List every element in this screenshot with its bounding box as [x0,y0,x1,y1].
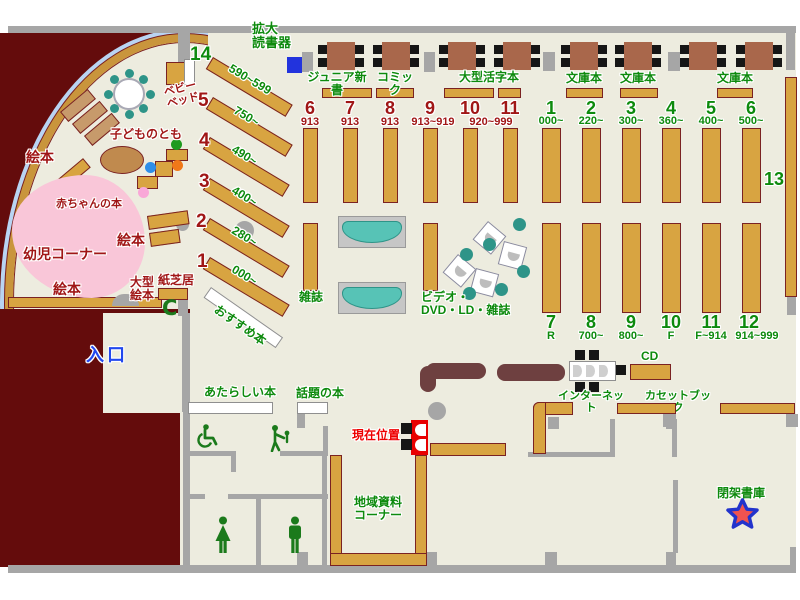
marker-seat [415,439,426,451]
label-shelf [566,88,603,98]
regional-shelf [330,553,427,566]
stack-shelf [303,128,318,203]
av-label: ビデオ・ DVD・LD・雑誌 [421,291,510,317]
internet-seat [586,365,595,377]
shelf-number: 2 [196,212,207,233]
outside-area-bottomleft2 [103,413,180,567]
wall-shelf [430,443,506,456]
chair [616,365,626,375]
wall-stub [790,547,796,566]
wall-stub [787,296,796,315]
regional-shelf [415,455,427,566]
wall-top [8,26,796,33]
shelf-number: 4 [199,131,210,152]
dot-blue [145,162,156,173]
magazine-label: 雑誌 [294,291,328,304]
reading-table [680,42,726,70]
pillar [543,52,555,71]
section-label: 文庫本 [713,72,757,85]
youji-corner-label: 幼児コーナー [23,247,107,262]
entrance-label: 入口 [86,346,128,365]
shelf-range: 920~999 [461,117,521,129]
wall-stub [666,552,676,566]
chair-dot [104,90,113,99]
reading-table [736,42,782,70]
wall-bottom [8,565,796,573]
man-icon [283,516,307,554]
wall-stub [786,33,795,70]
dot-orange [172,160,183,171]
wall-shelf [720,403,795,414]
service-counter [420,366,436,392]
cassette-shelf [617,403,676,414]
shelf-range: 913~919 [403,117,463,129]
chair-dot [460,248,473,261]
current-position-label: 現在位置 [348,429,404,442]
shelf-range: 914~999 [727,331,787,343]
label-shelf [444,88,494,98]
shelf-range: 220~ [571,116,611,128]
pillar-round [428,402,446,420]
shelf-range: R [531,331,571,343]
reading-table [615,42,661,70]
kodomo-label: 子どものとも [110,128,182,141]
stack-shelf [582,128,601,203]
stack-shelf [423,223,438,291]
wall [228,494,328,499]
label-shelf [498,88,521,98]
shelf-range: F [651,331,691,343]
label-shelf [620,88,658,98]
section-label: 文庫本 [616,72,660,85]
stack-shelf [383,128,398,203]
stack-shelf [343,128,358,203]
chair-dot [146,90,155,99]
topic-books-shelf [297,402,328,414]
stack-shelf [702,128,721,203]
regional-label: 地域資料 コーナー [346,496,410,522]
chair [548,417,559,429]
stack-shelf [503,128,518,203]
new-books-label: あたらしい本 [198,386,282,399]
stack-shelf-13 [785,77,797,297]
internet-seat [573,365,582,377]
corner-table [533,402,546,454]
wall-stub [427,552,437,566]
pillar [302,52,313,72]
pillar [424,52,435,72]
reading-table [561,42,607,70]
wall [323,426,328,456]
internet-seat [599,365,608,377]
reading-table [439,42,485,70]
chair-dot [513,218,526,231]
section-label: 文庫本 [562,72,606,85]
stack-shelf [742,223,761,313]
pillar [668,52,680,71]
wall-toilet-left [183,412,190,567]
topic-books-label: 話題の本 [290,387,350,400]
chair-dot [483,238,496,251]
chair [575,350,585,360]
magazine-shelf [303,223,318,291]
kamishibai-label: 紙芝居 [158,274,194,287]
stack-shelf [742,128,761,203]
ehon-label: 絵本 [117,233,145,248]
stack-shelf [542,223,561,313]
closed-stack-star-icon [726,497,759,530]
chair-dot [125,69,134,78]
stack-shelf [582,223,601,313]
chair [786,414,798,427]
akachan-label: 赤ちゃんの本 [56,199,122,211]
wall [673,480,678,553]
reading-table [373,42,419,70]
stack-shelf [622,128,641,203]
magnifier-device [287,57,302,73]
magnifier-label: 拡大 読書器 [252,22,291,50]
phone-icon: C [162,296,177,320]
section-label: 大型活字本 [454,71,524,84]
new-books-shelf [188,402,273,414]
dot-pink [138,187,149,198]
library-floor-map: 14 5 4 3 2 1 590~599 750~ 490~ 400~ 280~… [0,0,800,600]
section-label: コミック [372,71,418,97]
stack-shelf [463,128,478,203]
wheelchair-icon [193,422,223,452]
reading-table [494,42,540,70]
stack-shelf [423,128,438,203]
service-counter [497,364,565,381]
shelf-range: 913 [290,117,330,129]
reading-table [318,42,364,70]
marker-seat [415,424,426,436]
ehon-label: 絵本 [26,150,54,165]
cd-shelf [630,364,671,380]
regional-shelf [330,455,342,566]
shelf-range: 800~ [611,331,651,343]
shelf-range: 500~ [731,116,771,128]
wall [231,456,236,472]
stack-shelf [662,128,681,203]
oval-table [100,146,144,174]
stack-shelf [702,223,721,313]
ehon-label: 絵本 [53,282,81,297]
shelf-range: 000~ [531,116,571,128]
ogata-ehon-label: 大型 絵本 [130,276,154,302]
baby-change-icon [268,424,302,452]
section-label: ジュニア新書 [302,71,372,97]
wall [610,419,615,457]
wall [322,456,327,567]
chair-dot [139,104,148,113]
shelf-number: 1 [197,252,208,273]
stack-shelf [662,223,681,313]
shelf-range: 300~ [611,116,651,128]
chair-dot [125,110,134,119]
chair-dot [139,75,148,84]
shelf-range: 360~ [651,116,691,128]
wall-corridor [182,313,190,412]
shelf-range: 700~ [571,331,611,343]
cd-label: CD [641,350,658,363]
shelf-number: 13 [762,170,786,189]
wall [256,499,261,567]
shelf-number: 14 [190,45,211,66]
label-shelf [717,88,753,98]
wall-stub [545,552,557,566]
woman-icon [211,516,235,554]
shelf-range: 913 [330,117,370,129]
chair-dot [517,265,530,278]
chair-dot [110,75,119,84]
stack-shelf [622,223,641,313]
shelf-range: 400~ [691,116,731,128]
shelf-number: 3 [199,172,210,193]
chair [663,414,676,427]
display-step [155,161,173,177]
wall-stub [297,552,308,566]
chair [589,350,599,360]
wall [183,494,205,499]
stack-shelf [542,128,561,203]
